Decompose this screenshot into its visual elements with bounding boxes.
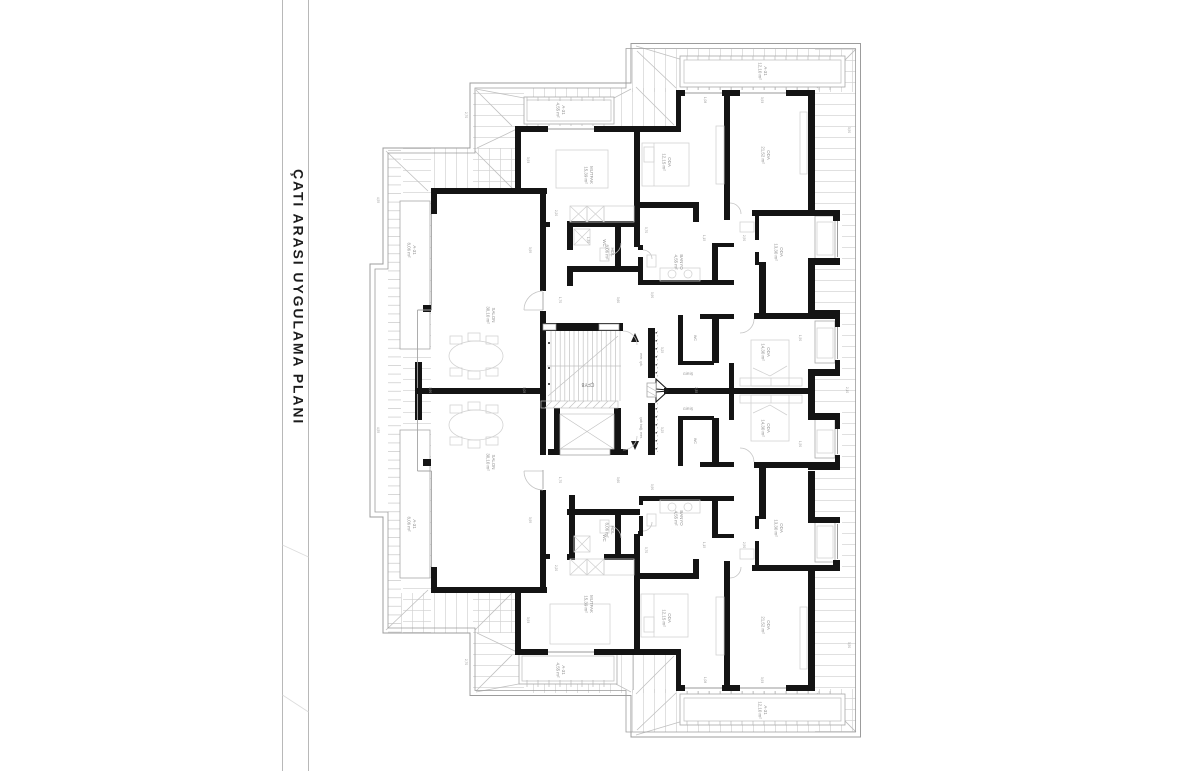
svg-text:ODA: ODA	[667, 157, 672, 167]
svg-text:1,70: 1,70	[558, 297, 562, 303]
svg-text:15,39 m²: 15,39 m²	[584, 595, 589, 613]
svg-text:A-31: A-31	[561, 105, 566, 115]
svg-text:3,25: 3,25	[660, 347, 664, 353]
svg-text:12,15 m²: 12,15 m²	[662, 609, 667, 627]
svg-text:14,30 m²: 14,30 m²	[761, 419, 766, 437]
svg-text:3,93: 3,93	[526, 617, 530, 623]
svg-text:2,50: 2,50	[742, 542, 746, 548]
svg-text:A-31: A-31	[412, 245, 417, 255]
svg-text:ÇFY8: ÇFY8	[581, 381, 594, 387]
svg-text:2,50: 2,50	[742, 235, 746, 241]
svg-text:1,70: 1,70	[558, 477, 562, 483]
svg-text:5,05: 5,05	[522, 387, 526, 393]
svg-text:2,70: 2,70	[464, 112, 468, 118]
svg-text:8,06 m²: 8,06 m²	[407, 517, 412, 532]
svg-text:15,39 m²: 15,39 m²	[584, 166, 589, 184]
svg-text:4,55 m²: 4,55 m²	[556, 663, 561, 678]
svg-text:4,55 m²: 4,55 m²	[674, 511, 679, 526]
svg-text:mer. çık.: mer. çık.	[639, 353, 643, 367]
svg-text:3,93: 3,93	[760, 677, 764, 683]
svg-text:1,35: 1,35	[586, 237, 590, 243]
svg-text:3,93: 3,93	[760, 97, 764, 103]
svg-text:12,10 m²: 12,10 m²	[758, 701, 763, 719]
svg-text:0,90: 0,90	[428, 387, 432, 393]
svg-text:ODA: ODA	[766, 150, 771, 160]
svg-text:WC: WC	[693, 438, 697, 444]
svg-text:2,20: 2,20	[554, 565, 558, 571]
svg-text:BANYO: BANYO	[679, 254, 684, 270]
svg-text:30,10 m²: 30,10 m²	[486, 306, 491, 324]
svg-text:3,50: 3,50	[847, 127, 851, 133]
svg-text:8,06 m²: 8,06 m²	[605, 523, 610, 538]
svg-text:2,70: 2,70	[464, 659, 468, 665]
svg-text:3,25: 3,25	[660, 427, 664, 433]
svg-text:3,50: 3,50	[847, 642, 851, 648]
svg-text:0,60: 0,60	[616, 477, 620, 483]
svg-text:GİRİŞ: GİRİŞ	[683, 406, 694, 411]
svg-text:GİRİŞ: GİRİŞ	[683, 371, 694, 376]
svg-text:8,06 m²: 8,06 m²	[605, 245, 610, 260]
svg-text:MUTFAK: MUTFAK	[589, 595, 594, 613]
svg-text:3,93: 3,93	[526, 157, 530, 163]
svg-text:13,30 m²: 13,30 m²	[774, 519, 779, 537]
svg-text:14,30 m²: 14,30 m²	[761, 343, 766, 361]
svg-text:2,35: 2,35	[694, 387, 698, 393]
svg-text:1,08: 1,08	[703, 677, 707, 683]
svg-text:0,90: 0,90	[650, 484, 654, 490]
svg-text:0,60: 0,60	[616, 297, 620, 303]
svg-text:ODA: ODA	[779, 523, 784, 533]
svg-text:0,70: 0,70	[644, 547, 648, 553]
svg-text:A-31: A-31	[561, 665, 566, 675]
svg-text:3,95: 3,95	[528, 247, 532, 253]
svg-text:12,10 m²: 12,10 m²	[758, 62, 763, 80]
svg-text:ODA: ODA	[766, 347, 771, 357]
svg-text:2,20: 2,20	[554, 210, 558, 216]
svg-text:0,70: 0,70	[644, 227, 648, 233]
svg-text:4,55: 4,55	[376, 197, 380, 203]
svg-text:30,10 m²: 30,10 m²	[486, 453, 491, 471]
svg-text:3,95: 3,95	[528, 517, 532, 523]
svg-text:1,50: 1,50	[798, 441, 802, 447]
svg-text:1,15: 1,15	[702, 235, 706, 241]
svg-text:çatı bağ. mer.: çatı bağ. mer.	[639, 417, 643, 439]
svg-text:A-31: A-31	[412, 519, 417, 529]
svg-text:21,52 m²: 21,52 m²	[761, 146, 766, 164]
svg-text:A-31: A-31	[763, 66, 768, 76]
svg-text:1,50: 1,50	[798, 335, 802, 341]
svg-text:1,08: 1,08	[703, 97, 707, 103]
svg-text:ODA: ODA	[766, 423, 771, 433]
svg-text:SALON: SALON	[491, 308, 496, 323]
svg-text:13,30 m²: 13,30 m²	[774, 243, 779, 261]
svg-text:8,06 m²: 8,06 m²	[407, 243, 412, 258]
svg-text:ODA: ODA	[766, 620, 771, 630]
svg-text:A-31: A-31	[763, 705, 768, 715]
svg-text:BANYO: BANYO	[679, 510, 684, 526]
svg-text:12,15 m²: 12,15 m²	[662, 153, 667, 171]
svg-text:HOL: HOL	[610, 247, 615, 257]
svg-text:2,10: 2,10	[845, 387, 849, 393]
svg-text:1,15: 1,15	[702, 542, 706, 548]
svg-text:4,55 m²: 4,55 m²	[674, 255, 679, 270]
svg-text:MUTFAK: MUTFAK	[589, 166, 594, 184]
svg-text:HOL: HOL	[610, 525, 615, 535]
svg-text:21,52 m²: 21,52 m²	[761, 616, 766, 634]
svg-text:4,55: 4,55	[376, 427, 380, 433]
svg-text:SALON: SALON	[491, 455, 496, 470]
svg-text:WC: WC	[693, 335, 697, 341]
svg-text:4,55 m²: 4,55 m²	[556, 103, 561, 118]
svg-text:0,90: 0,90	[650, 292, 654, 298]
svg-text:ÇATI ARASI UYGULAMA PLANI: ÇATI ARASI UYGULAMA PLANI	[291, 169, 307, 425]
svg-text:ODA: ODA	[779, 247, 784, 257]
svg-text:ODA: ODA	[667, 613, 672, 623]
